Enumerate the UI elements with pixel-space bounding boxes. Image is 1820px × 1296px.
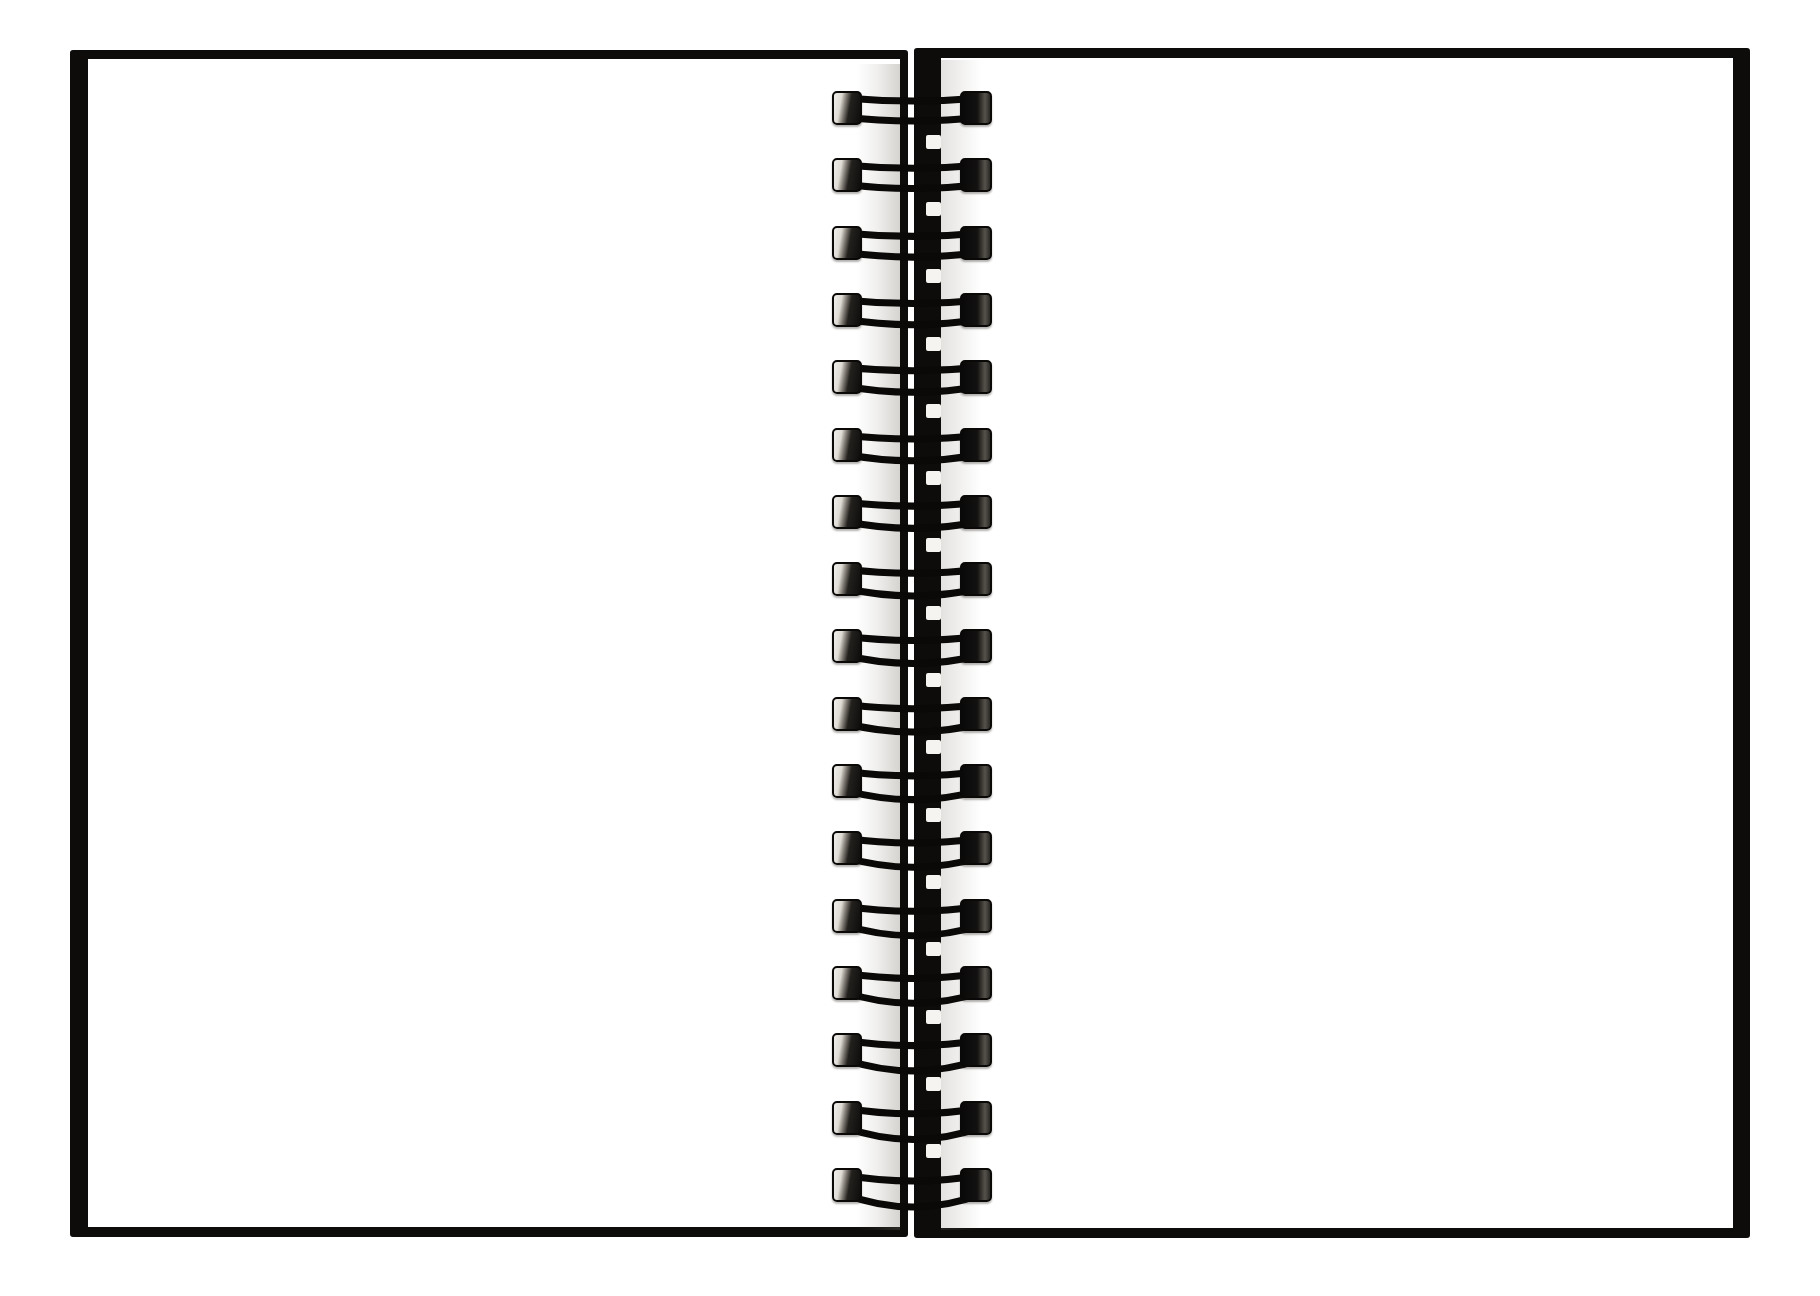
- wire-end-right: [960, 966, 992, 1000]
- wire-end-left: [832, 831, 862, 865]
- right-page: [914, 48, 1750, 1238]
- wire-end-left: [832, 495, 862, 529]
- wire-end-right: [960, 226, 992, 260]
- wire-end-right: [960, 360, 992, 394]
- wire-end-left: [832, 158, 862, 192]
- wire-end-right: [960, 1033, 992, 1067]
- wire-end-right: [960, 899, 992, 933]
- wire-end-left: [832, 1033, 862, 1067]
- wire-end-right: [960, 697, 992, 731]
- wire-end-left: [832, 697, 862, 731]
- wire-end-right: [960, 428, 992, 462]
- wire-end-right: [960, 562, 992, 596]
- wire-end-left: [832, 1168, 862, 1202]
- wire-end-right: [960, 495, 992, 529]
- wire-end-right: [960, 293, 992, 327]
- wire-end-left: [832, 1101, 862, 1135]
- wire-end-left: [832, 966, 862, 1000]
- left-page: [70, 50, 908, 1237]
- wire-end-right: [960, 629, 992, 663]
- wire-end-right: [960, 1101, 992, 1135]
- wire-end-right: [960, 831, 992, 865]
- wire-end-left: [832, 629, 862, 663]
- notebook-photo: [0, 0, 1820, 1296]
- wire-end-left: [832, 562, 862, 596]
- wire-end-left: [832, 91, 862, 125]
- wire-end-left: [832, 360, 862, 394]
- wire-end-right: [960, 764, 992, 798]
- wire-end-left: [832, 899, 862, 933]
- wire-end-left: [832, 764, 862, 798]
- wire-end-left: [832, 226, 862, 260]
- wire-end-left: [832, 293, 862, 327]
- wire-end-left: [832, 428, 862, 462]
- wire-end-right: [960, 158, 992, 192]
- wire-end-right: [960, 1168, 992, 1202]
- wire-loop: [830, 1145, 996, 1225]
- wire-end-right: [960, 91, 992, 125]
